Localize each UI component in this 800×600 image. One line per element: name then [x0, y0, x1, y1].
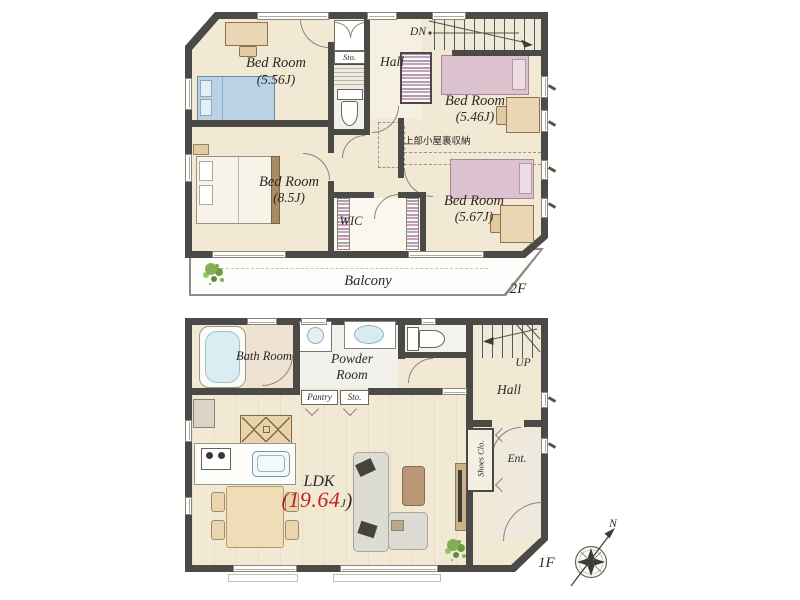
plant-icon	[447, 539, 459, 551]
hall-label: Hall	[363, 55, 421, 70]
window	[432, 12, 466, 20]
balcony-label: Balcony	[308, 274, 428, 290]
wall	[398, 118, 404, 178]
pillow	[200, 99, 212, 116]
room-size-label: (5.56J)	[216, 73, 336, 88]
ldk-area-value: 19.64	[288, 487, 340, 512]
room-label: Bed Room	[229, 175, 349, 191]
kitchen-sink	[257, 455, 285, 472]
shoes-closet-label: Shoes Clo.	[476, 427, 485, 491]
storage-label: Sto.	[340, 390, 369, 405]
room-label: Bed Room	[414, 194, 534, 210]
window	[541, 198, 548, 218]
entrance-label: Ent.	[487, 453, 547, 466]
floor-plan-canvas: DN Bed Room (5.56J) Sto. Hall Bed Room (…	[0, 0, 800, 600]
wall	[328, 127, 334, 153]
balcony-tick-line	[206, 268, 488, 269]
chair	[211, 520, 225, 540]
north-label: N	[602, 518, 624, 531]
room-label: Bed Room	[415, 94, 535, 110]
wall	[466, 358, 473, 428]
wall	[466, 492, 473, 565]
window	[541, 438, 548, 454]
window	[301, 318, 327, 325]
storage-label: Sto.	[334, 51, 365, 64]
window	[421, 318, 436, 325]
desk	[225, 22, 268, 46]
stairs-1f	[473, 325, 541, 358]
sliding-door	[212, 251, 286, 258]
attic-storage-note: 上部小屋裏収納	[404, 137, 471, 147]
refrigerator	[193, 399, 215, 428]
ldk-paren-close: )	[346, 490, 353, 512]
powder-room-label: Room	[302, 368, 402, 383]
window	[185, 497, 192, 515]
window	[247, 318, 277, 325]
window-handle-icon	[548, 166, 556, 173]
window-handle-icon	[548, 202, 556, 209]
tv-screen	[458, 470, 462, 522]
sofa-pillow	[391, 520, 404, 531]
sliding-door	[233, 565, 297, 572]
window-handle-icon	[548, 396, 556, 403]
attic-dashed-line	[404, 152, 541, 153]
window-handle-icon	[548, 120, 556, 127]
toilet-symbol	[407, 327, 419, 351]
cabinet-knob	[263, 426, 270, 433]
wall	[328, 129, 370, 135]
window	[185, 78, 192, 110]
window	[367, 12, 397, 20]
room-label: Bed Room	[216, 56, 336, 72]
wall	[192, 388, 300, 395]
chair	[285, 520, 299, 540]
pillow	[200, 80, 212, 97]
stove-symbol	[201, 448, 231, 470]
window	[185, 420, 192, 442]
compass-rose-icon	[576, 547, 607, 578]
wall	[192, 120, 334, 127]
wall	[368, 388, 442, 395]
sliding-door	[442, 388, 467, 395]
ldk-area-label: (19.64J)	[237, 488, 397, 512]
window	[541, 76, 548, 98]
toilet-symbol	[337, 89, 363, 100]
coffee-table	[402, 466, 425, 506]
room-size-label: (5.46J)	[415, 110, 535, 125]
wall	[364, 19, 370, 135]
pantry-label: Pantry	[301, 390, 338, 405]
north-arrow-icon	[571, 528, 615, 586]
window	[257, 12, 329, 20]
window-handle-icon	[548, 84, 556, 91]
pillow	[519, 163, 532, 194]
pillow	[199, 161, 213, 181]
stairs-label: DN	[396, 26, 426, 39]
hall-label: Hall	[479, 383, 539, 398]
burner-dot	[218, 452, 225, 459]
window	[541, 392, 548, 408]
shelf	[334, 64, 365, 88]
window	[185, 154, 192, 182]
floor2-label: 2F	[498, 281, 538, 298]
burner-dot	[206, 452, 213, 459]
wic-label: WIC	[321, 215, 381, 229]
floor1-label: 1F	[538, 555, 574, 572]
window	[541, 160, 548, 180]
wall	[524, 420, 548, 427]
window-sill	[228, 574, 298, 582]
chair	[211, 492, 225, 512]
stairs-label: UP	[505, 357, 541, 370]
plant-icon	[205, 263, 217, 275]
window-handle-icon	[548, 442, 556, 449]
sliding-door	[408, 251, 484, 258]
sink-bowl	[354, 325, 384, 344]
sofa	[388, 512, 428, 550]
sliding-door	[340, 565, 438, 572]
room-size-label: (5.67J)	[414, 210, 534, 225]
toilet-symbol	[419, 330, 445, 348]
pillow	[199, 185, 213, 205]
nightstand	[193, 144, 209, 155]
pillow	[512, 59, 526, 90]
stairs-2f	[425, 19, 541, 50]
window-sill	[333, 574, 441, 582]
wall	[398, 352, 473, 358]
room-size-label: (8.5J)	[229, 191, 349, 206]
wall	[452, 50, 541, 56]
wall	[466, 325, 473, 358]
washing-machine-symbol	[307, 327, 324, 344]
powder-room-label: Powder	[302, 352, 402, 367]
window	[541, 110, 548, 132]
